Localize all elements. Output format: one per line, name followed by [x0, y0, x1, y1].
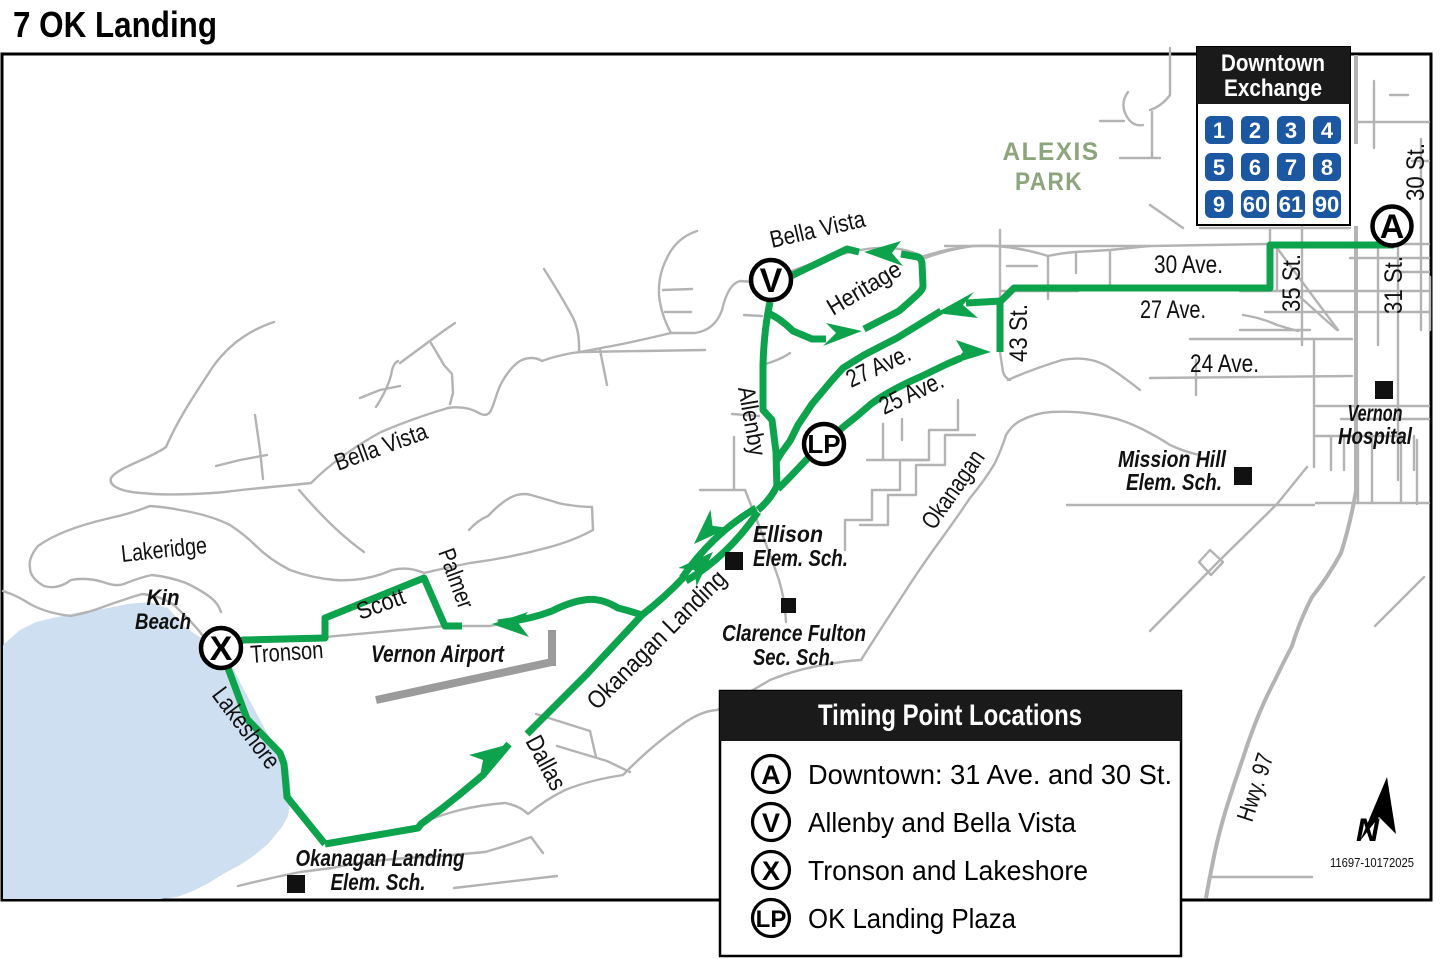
svg-text:24 Ave.: 24 Ave.: [1190, 350, 1259, 378]
svg-text:PARK: PARK: [1015, 168, 1083, 196]
svg-text:Vernon Airport: Vernon Airport: [371, 641, 505, 668]
svg-text:11697-10172025: 11697-10172025: [1330, 855, 1414, 870]
svg-text:Sec. Sch.: Sec. Sch.: [753, 644, 835, 670]
svg-text:A: A: [1380, 208, 1405, 246]
svg-text:Beach: Beach: [135, 609, 191, 634]
svg-text:Downtown: 31 Ave. and 30 St.: Downtown: 31 Ave. and 30 St.: [808, 759, 1172, 790]
svg-text:2: 2: [1249, 118, 1261, 143]
svg-text:3: 3: [1285, 118, 1297, 143]
svg-text:30 St.: 30 St.: [1402, 143, 1430, 201]
svg-text:Elem. Sch.: Elem. Sch.: [331, 869, 426, 895]
svg-text:4: 4: [1321, 118, 1334, 143]
svg-text:Tronson and Lakeshore: Tronson and Lakeshore: [808, 855, 1088, 886]
svg-text:61: 61: [1279, 192, 1303, 217]
svg-text:V: V: [760, 262, 783, 300]
svg-text:Downtown: Downtown: [1221, 50, 1325, 77]
svg-text:27 Ave.: 27 Ave.: [1140, 296, 1206, 324]
svg-text:6: 6: [1249, 155, 1261, 180]
svg-text:60: 60: [1243, 192, 1267, 217]
svg-text:Kin: Kin: [147, 585, 180, 610]
svg-text:Hospital: Hospital: [1338, 423, 1412, 449]
svg-text:Elem. Sch.: Elem. Sch.: [1126, 469, 1222, 495]
svg-text:Tronson: Tronson: [249, 636, 324, 669]
svg-text:9: 9: [1213, 192, 1225, 217]
svg-text:7 OK Landing: 7 OK Landing: [13, 4, 217, 45]
svg-text:Timing Point Locations: Timing Point Locations: [818, 699, 1082, 732]
svg-text:X: X: [762, 856, 780, 886]
svg-text:43 St.: 43 St.: [1005, 304, 1033, 362]
svg-text:Exchange: Exchange: [1224, 75, 1322, 102]
svg-text:N: N: [1356, 812, 1380, 848]
svg-text:LP: LP: [807, 429, 840, 459]
svg-text:8: 8: [1321, 155, 1333, 180]
svg-text:35 St.: 35 St.: [1278, 254, 1306, 312]
svg-text:5: 5: [1213, 155, 1225, 180]
svg-text:31 St.: 31 St.: [1380, 256, 1408, 314]
svg-text:Elem. Sch.: Elem. Sch.: [753, 545, 848, 571]
svg-text:90: 90: [1315, 192, 1339, 217]
svg-text:ALEXIS: ALEXIS: [1003, 138, 1100, 166]
svg-text:1: 1: [1213, 118, 1225, 143]
svg-text:V: V: [762, 808, 780, 838]
svg-text:Allenby and Bella Vista: Allenby and Bella Vista: [808, 807, 1076, 838]
svg-text:X: X: [210, 630, 233, 668]
svg-text:A: A: [761, 760, 781, 790]
svg-text:LP: LP: [756, 906, 787, 933]
svg-text:Ellison: Ellison: [753, 521, 823, 547]
svg-text:30 Ave.: 30 Ave.: [1154, 251, 1223, 279]
svg-text:OK Landing Plaza: OK Landing Plaza: [808, 903, 1016, 934]
svg-text:Clarence Fulton: Clarence Fulton: [722, 620, 866, 646]
svg-text:7: 7: [1285, 155, 1297, 180]
svg-text:Okanagan Landing: Okanagan Landing: [296, 845, 465, 871]
